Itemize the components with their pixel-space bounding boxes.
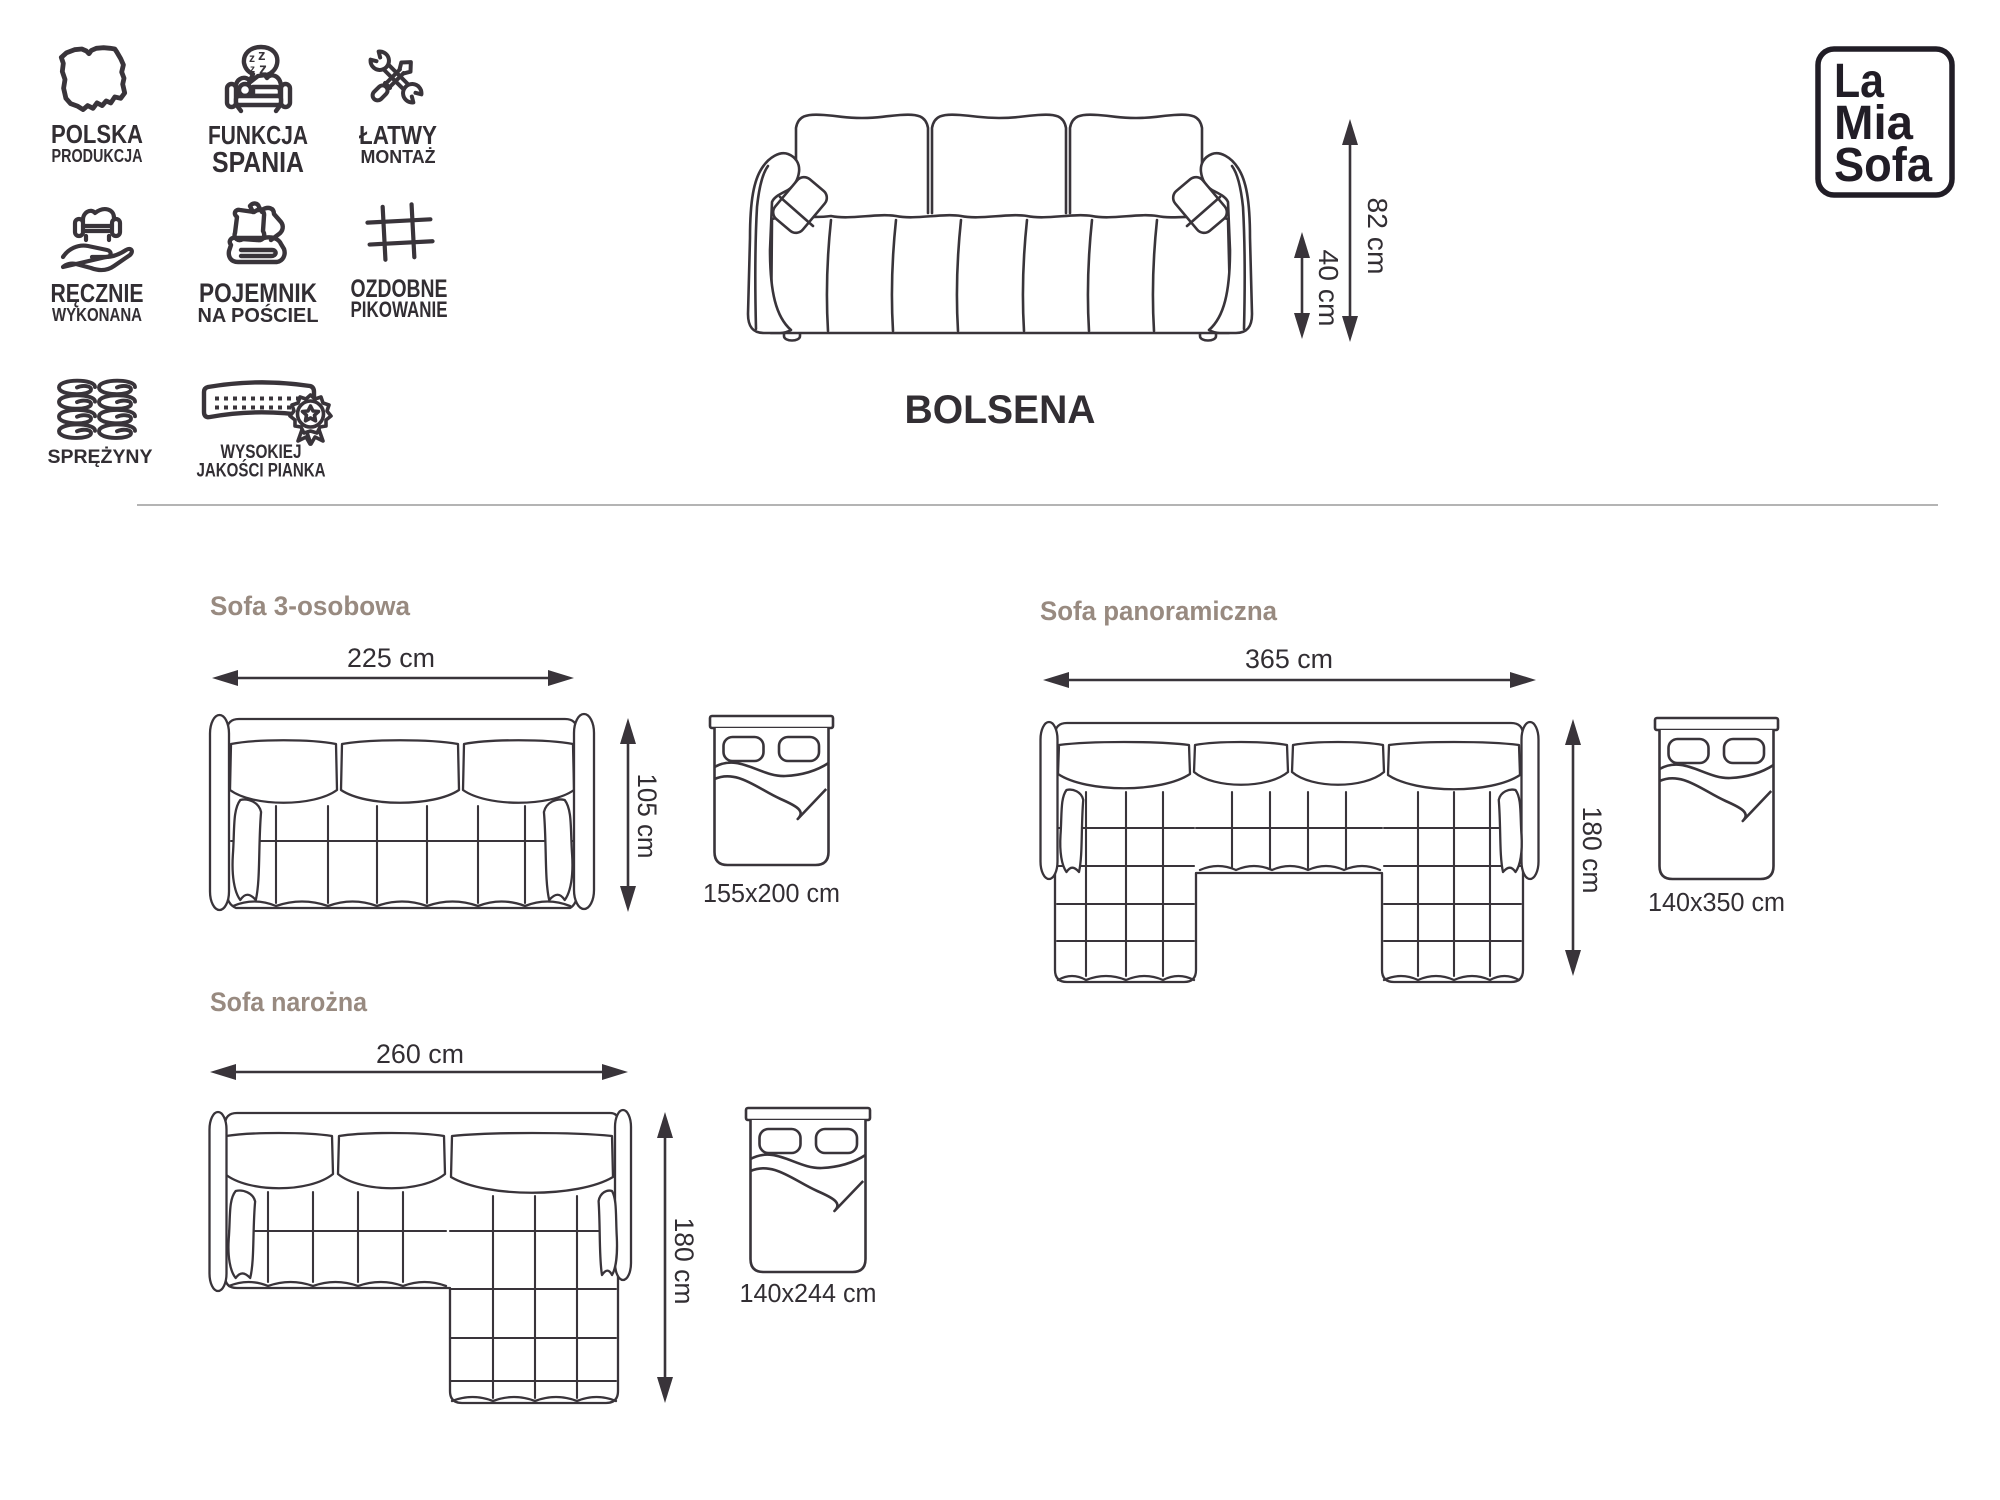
svg-text:SPANIA: SPANIA [212, 147, 304, 179]
svg-text:PIKOWANIE: PIKOWANIE [351, 297, 448, 322]
svg-text:POJEMNIK: POJEMNIK [199, 278, 317, 308]
svg-text:z: z [259, 61, 267, 78]
svg-text:PRODUKCJA: PRODUKCJA [52, 145, 143, 166]
svg-text:MONTAŻ: MONTAŻ [361, 146, 436, 167]
svg-text:z: z [249, 51, 255, 65]
svg-text:SPRĘŻYNY: SPRĘŻYNY [48, 447, 153, 468]
svg-text:140x244 cm: 140x244 cm [740, 1280, 877, 1308]
svg-text:105 cm: 105 cm [632, 774, 662, 859]
svg-text:365 cm: 365 cm [1245, 644, 1333, 674]
svg-text:40 cm: 40 cm [1313, 250, 1344, 327]
svg-text:WYKONANA: WYKONANA [52, 304, 142, 325]
svg-text:140x350 cm: 140x350 cm [1648, 889, 1785, 917]
svg-text:155x200 cm: 155x200 cm [703, 880, 840, 908]
svg-text:180 cm: 180 cm [669, 1218, 699, 1305]
svg-text:JAKOŚCI PIANKA: JAKOŚCI PIANKA [197, 458, 326, 482]
svg-text:z: z [250, 64, 255, 75]
svg-text:180 cm: 180 cm [1577, 807, 1607, 894]
svg-text:Sofa: Sofa [1834, 139, 1932, 192]
svg-text:260 cm: 260 cm [376, 1039, 464, 1069]
svg-text:FUNKCJA: FUNKCJA [208, 120, 308, 150]
svg-text:Sofa 3-osobowa: Sofa 3-osobowa [210, 591, 411, 621]
svg-text:82 cm: 82 cm [1362, 198, 1393, 275]
svg-text:NA POŚCIEL: NA POŚCIEL [198, 303, 319, 327]
svg-text:BOLSENA: BOLSENA [905, 388, 1096, 432]
svg-text:Sofa narożna: Sofa narożna [210, 987, 368, 1017]
svg-text:Sofa panoramiczna: Sofa panoramiczna [1040, 596, 1278, 626]
svg-text:225 cm: 225 cm [347, 643, 435, 673]
